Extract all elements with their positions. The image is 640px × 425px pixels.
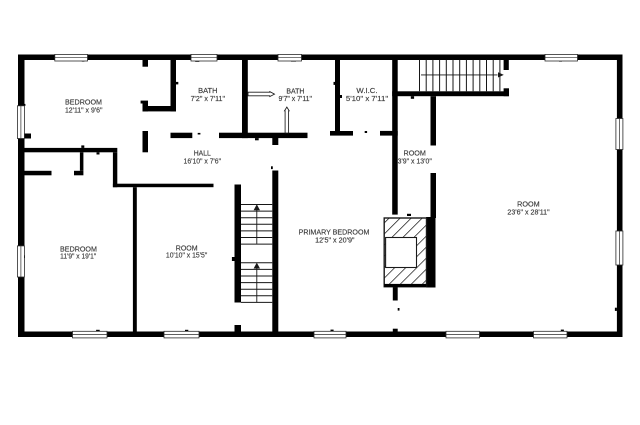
svg-text:12'11" x 9'6": 12'11" x 9'6" xyxy=(65,105,103,114)
svg-text:23'6" x 28'11": 23'6" x 28'11" xyxy=(507,208,550,217)
svg-text:5'10" x 7'11": 5'10" x 7'11" xyxy=(346,94,389,103)
svg-text:9'7" x 7'11": 9'7" x 7'11" xyxy=(278,94,312,103)
svg-text:10'10" x 15'5": 10'10" x 15'5" xyxy=(166,251,208,260)
svg-text:3'9" x 13'0": 3'9" x 13'0" xyxy=(398,157,433,166)
svg-text:12'5" x 20'9": 12'5" x 20'9" xyxy=(315,235,355,244)
svg-text:11'9" x 19'1": 11'9" x 19'1" xyxy=(60,252,96,261)
svg-text:7'2" x 7'11": 7'2" x 7'11" xyxy=(191,94,226,103)
svg-text:16'10" x 7'6": 16'10" x 7'6" xyxy=(184,157,222,166)
